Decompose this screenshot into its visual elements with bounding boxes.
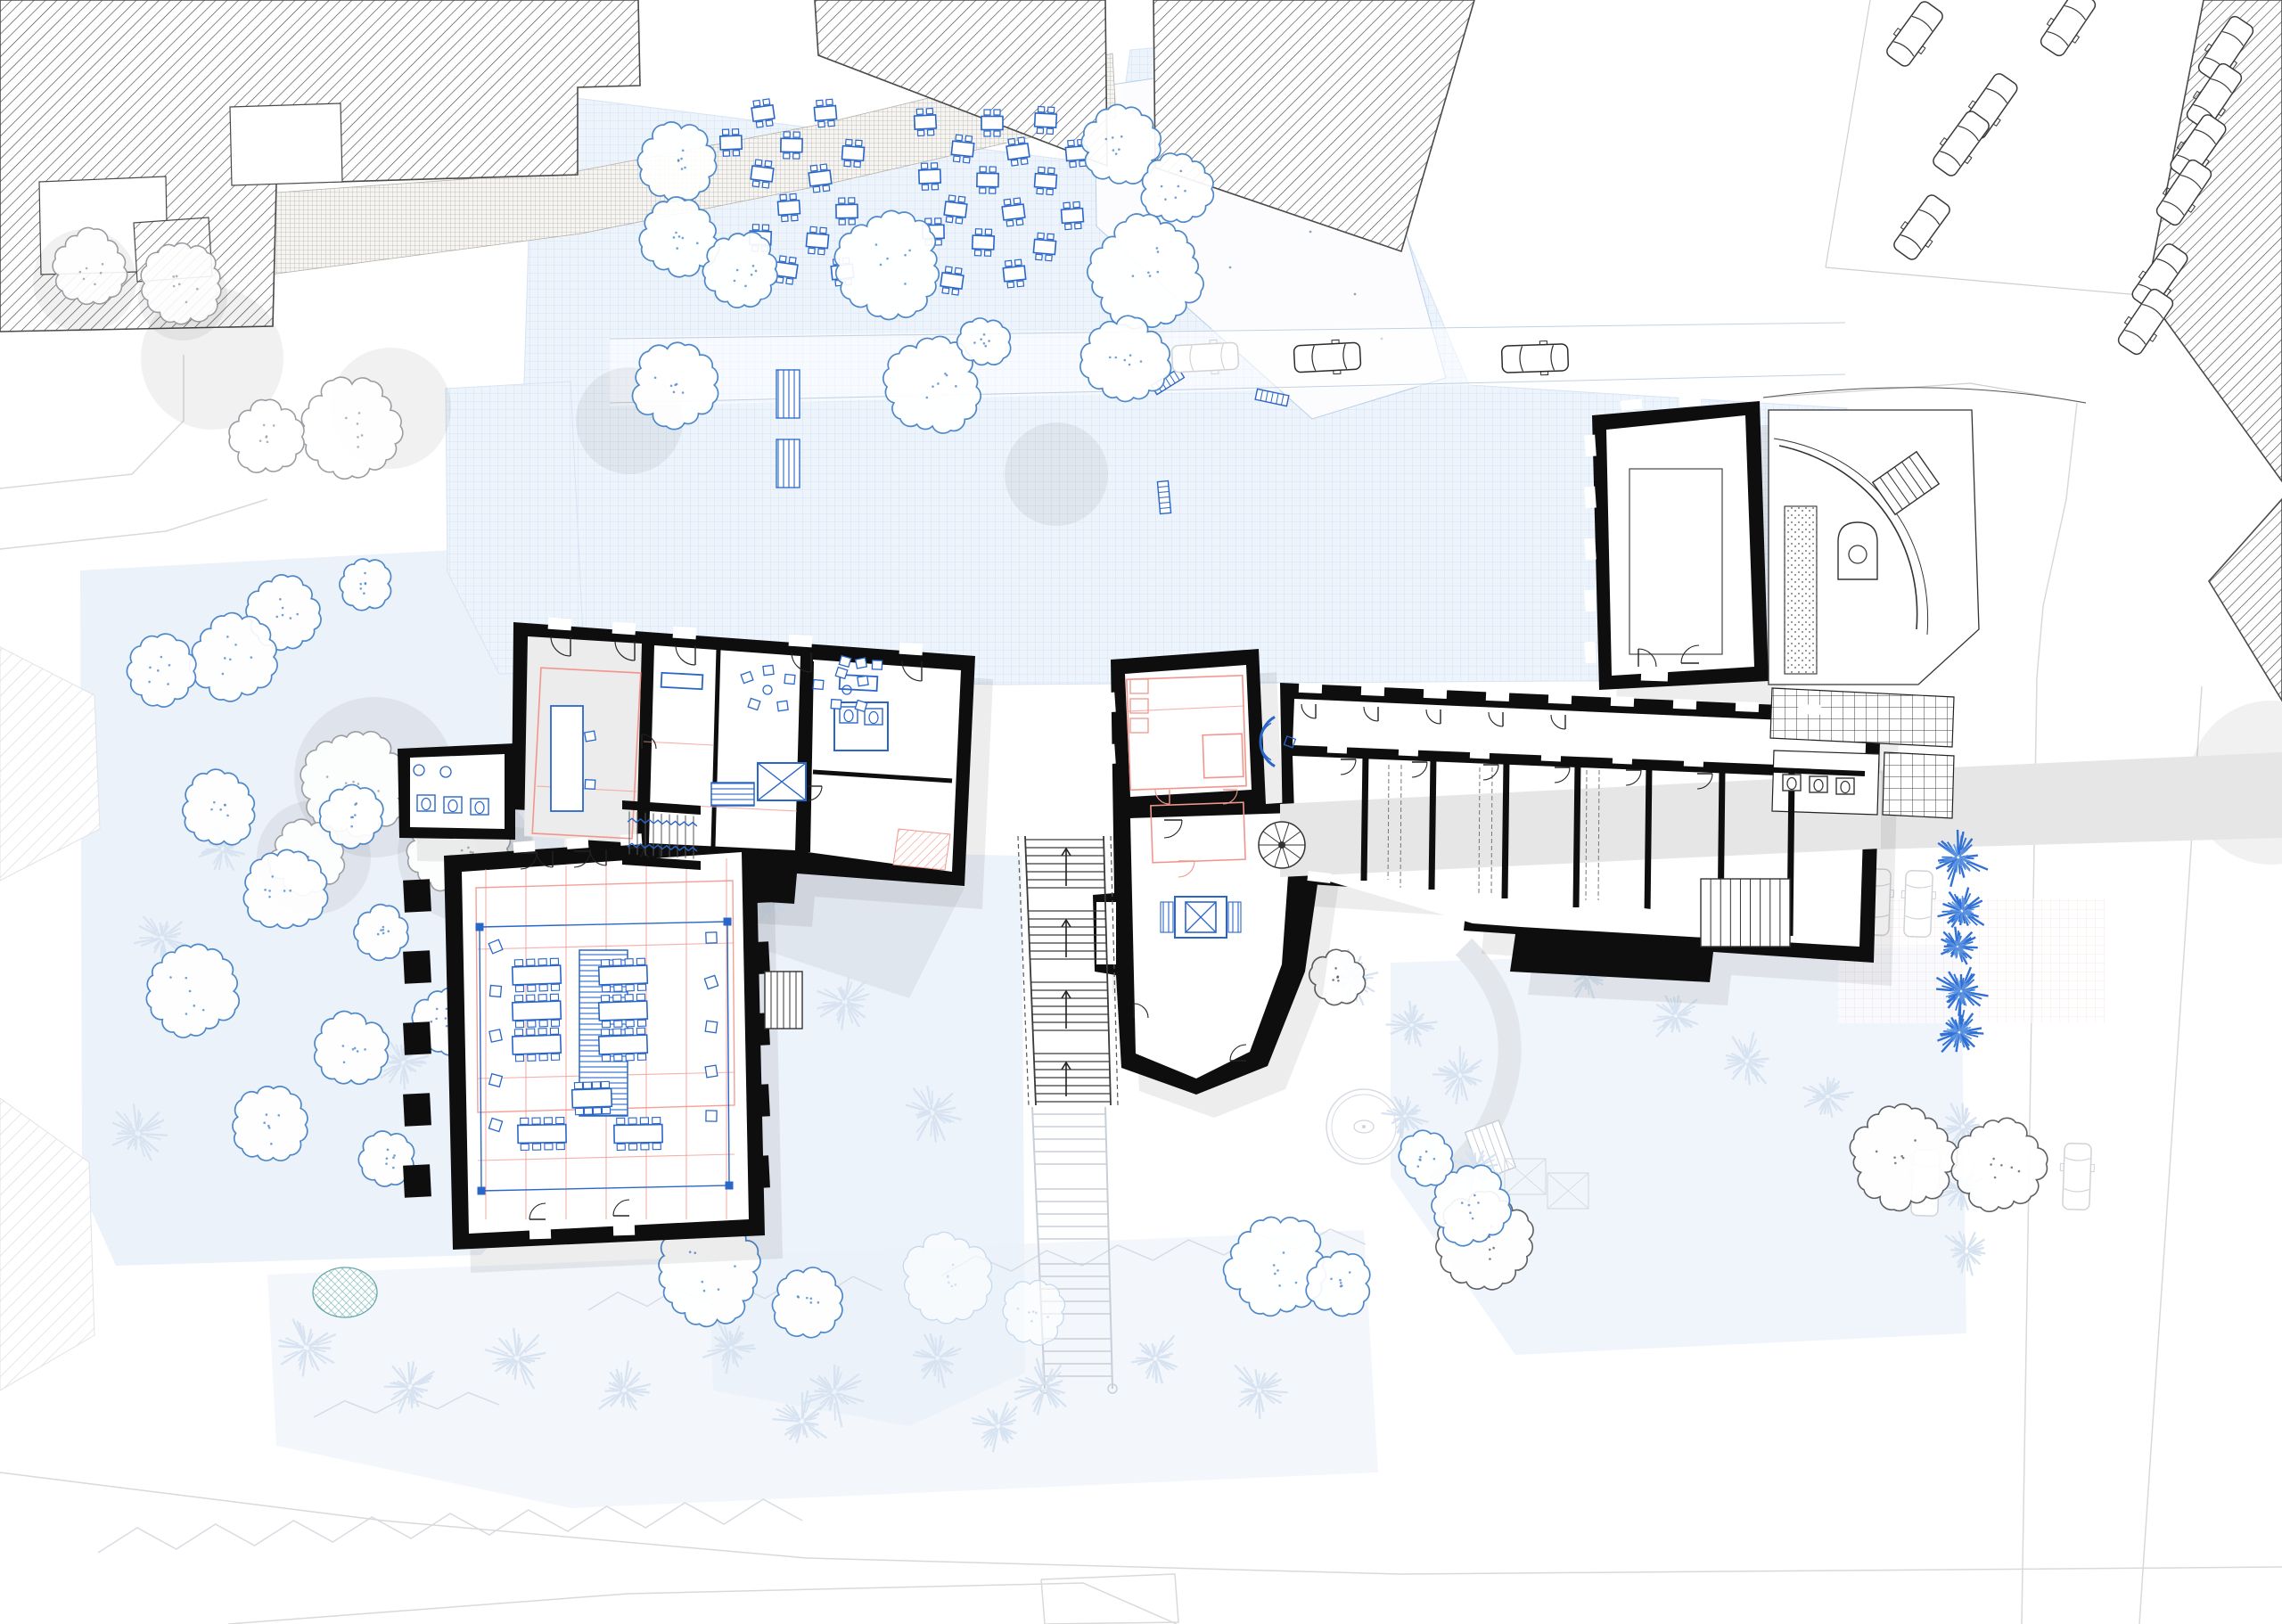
chair: [1065, 224, 1071, 229]
tree-dot: [1900, 1155, 1903, 1158]
tree-dot: [393, 1154, 396, 1157]
tree-dot: [263, 1121, 266, 1124]
tree-dot: [357, 446, 359, 448]
chair: [637, 984, 645, 990]
chair: [856, 140, 862, 145]
palm-frond: [1420, 1025, 1432, 1026]
toilet-fixture: [444, 797, 462, 813]
tree-dot: [1994, 1177, 1997, 1179]
tree-dot: [1876, 1151, 1878, 1153]
tree-dot: [1273, 1264, 1276, 1267]
site-plan-svg: [0, 0, 2282, 1624]
table-top: [973, 235, 995, 250]
tree-dot: [682, 149, 685, 152]
table-top: [751, 166, 774, 182]
column-marker: [478, 1187, 486, 1195]
tree-dot: [703, 1290, 706, 1292]
blue-tree: [243, 849, 327, 928]
chair: [1038, 107, 1044, 112]
chair: [602, 1055, 610, 1062]
car-body: [1904, 870, 1933, 937]
tree-dot: [345, 417, 348, 420]
tree-dot: [277, 1114, 280, 1117]
parked-car: [2036, 0, 2101, 60]
palm-frond: [403, 1048, 404, 1057]
chair: [789, 257, 796, 263]
chair: [551, 1054, 559, 1060]
tree-dot: [1030, 1320, 1033, 1323]
table-top: [981, 117, 1003, 130]
work-table: [571, 1081, 612, 1115]
tree-dot: [1035, 1312, 1038, 1315]
chair: [784, 674, 795, 684]
blue-stair: [711, 783, 754, 806]
tree-dot: [1180, 170, 1183, 173]
chair: [617, 1118, 625, 1124]
chair: [1047, 107, 1054, 112]
tree-dot: [954, 1284, 956, 1286]
tree-dot: [1468, 1204, 1471, 1207]
palm-frond: [1432, 1074, 1457, 1075]
tree-dot: [1339, 1279, 1342, 1282]
tree-dot: [357, 783, 360, 785]
tree-dot: [352, 1048, 355, 1051]
tree-dot: [980, 338, 982, 340]
chair: [931, 163, 937, 168]
palm-frond: [1155, 1361, 1156, 1383]
palm-frond: [1244, 1389, 1253, 1390]
tree-dot: [674, 384, 677, 387]
palm-frond: [844, 989, 845, 997]
tree-dot: [1184, 190, 1186, 193]
tree-dot: [283, 890, 286, 892]
chair: [963, 157, 970, 163]
chair: [935, 218, 941, 224]
chair: [521, 1118, 529, 1124]
table-top: [513, 965, 562, 985]
ghost-parked-car: [1900, 870, 1937, 937]
chair: [935, 240, 941, 245]
chair: [1068, 140, 1074, 146]
tree-dot: [446, 1025, 448, 1028]
tree-dot: [2000, 1164, 2003, 1167]
tree-dot: [169, 976, 172, 979]
chair: [1046, 255, 1052, 261]
chair: [602, 986, 610, 992]
palm-frond: [1259, 1393, 1260, 1419]
chair: [945, 267, 952, 273]
chair: [752, 181, 759, 187]
palm-frond: [1968, 1127, 1976, 1128]
tree-dot: [678, 235, 681, 238]
tree-dot: [226, 636, 229, 638]
chair: [1038, 233, 1044, 239]
window-opening: [1584, 538, 1597, 561]
tree-dot: [359, 583, 362, 586]
tree-dot: [345, 782, 348, 784]
palm-frond: [931, 1121, 932, 1136]
chair: [544, 1118, 552, 1124]
chair: [551, 1020, 559, 1026]
chair: [539, 1054, 547, 1061]
chair: [550, 994, 558, 1000]
palm-frond: [730, 1331, 731, 1346]
chair: [593, 1108, 601, 1114]
curb-line: [0, 1472, 2282, 1574]
tree-dot: [357, 422, 359, 425]
chair: [817, 100, 823, 106]
table-top: [518, 1125, 566, 1144]
tree-dot: [1175, 196, 1178, 199]
chair: [952, 289, 959, 295]
chair: [601, 960, 609, 966]
tree-dot: [189, 990, 192, 993]
tree-dot: [673, 236, 676, 239]
gravel-dot: [1229, 267, 1232, 269]
chair: [780, 194, 786, 200]
tree-dot: [279, 598, 282, 601]
chair: [528, 1054, 536, 1061]
table-top: [513, 1001, 562, 1021]
tree-dot: [810, 1301, 813, 1304]
stair-outline: [1701, 879, 1790, 947]
tree-dot: [296, 613, 299, 616]
tree-dot: [701, 1281, 703, 1284]
tree-dot: [210, 808, 213, 811]
tree-dot: [983, 342, 986, 345]
table-top: [1062, 209, 1084, 224]
tree-dot: [196, 288, 199, 291]
chair: [575, 1108, 583, 1114]
lot-line: [1826, 267, 2150, 296]
tree-dot: [1336, 976, 1339, 979]
chair: [1016, 219, 1023, 226]
table-top: [842, 146, 865, 161]
chair: [989, 167, 996, 172]
tree-dot: [435, 1018, 438, 1021]
chair: [828, 120, 834, 127]
tree-dot: [86, 267, 88, 270]
elevator-stair-wing: [1161, 902, 1173, 932]
tree-dot: [680, 158, 683, 160]
tree-dot: [1278, 1284, 1281, 1287]
tree-dot: [352, 781, 355, 783]
tree-dot: [102, 263, 104, 266]
tree-dot: [355, 802, 357, 805]
window-opening: [1611, 696, 1634, 707]
tree-dot: [382, 929, 385, 931]
chair: [958, 196, 965, 202]
window-opening: [1361, 685, 1384, 696]
chair: [965, 135, 973, 142]
chair: [826, 99, 833, 105]
table-top: [915, 115, 937, 129]
window-opening: [1299, 683, 1322, 693]
chair: [856, 658, 867, 668]
table-top: [951, 141, 973, 156]
tree-dot: [1017, 1308, 1020, 1310]
tree-dot: [1178, 185, 1180, 188]
palm-frond: [309, 1348, 331, 1349]
palm-frond: [1405, 1120, 1406, 1128]
tree-dot: [160, 656, 163, 659]
stool: [489, 985, 501, 997]
window-opening: [1105, 693, 1116, 713]
wc-stall: [417, 795, 435, 811]
chair: [1011, 160, 1018, 166]
tree-dot: [392, 1167, 395, 1169]
chair: [653, 1118, 661, 1124]
tree-dot: [926, 397, 929, 399]
chair: [1021, 159, 1028, 165]
chair: [556, 1144, 564, 1150]
car-body: [1293, 342, 1360, 373]
toilet-fixture: [417, 795, 435, 811]
tree-dot: [950, 1285, 953, 1288]
tree-dot: [1161, 185, 1163, 188]
tree-dot: [734, 1265, 736, 1267]
tree-dot: [157, 669, 160, 672]
chair: [762, 182, 769, 188]
table-top: [1035, 174, 1057, 189]
window-opening: [1621, 398, 1643, 410]
tree-dot: [185, 1013, 188, 1015]
chair: [1036, 254, 1042, 260]
tree-dot: [94, 283, 96, 286]
toilet-fixture: [1810, 776, 1827, 792]
window-opening: [613, 1225, 635, 1236]
planting-bed: [1785, 506, 1817, 674]
context-building: [2209, 499, 2282, 701]
tree-dot: [282, 614, 284, 617]
tree-dot: [904, 283, 907, 285]
table-top: [599, 1035, 648, 1054]
tree-dot: [176, 275, 178, 277]
tree-dot: [1115, 152, 1118, 155]
car-body: [2063, 1143, 2092, 1210]
chair: [753, 100, 760, 106]
parked-car: [1882, 0, 1948, 70]
tree-dot: [1112, 149, 1115, 152]
chair: [551, 984, 559, 990]
chair: [994, 131, 1000, 136]
table-top: [599, 1001, 648, 1021]
lot-line: [1826, 0, 1870, 267]
chair: [527, 995, 535, 1001]
tree-dot: [1283, 1251, 1285, 1254]
chair: [752, 225, 759, 230]
chair: [793, 153, 800, 159]
gravel-dot: [1309, 231, 1312, 234]
chair: [539, 1021, 547, 1027]
palm-frond: [408, 1362, 410, 1384]
tree-dot: [173, 285, 176, 288]
tree-dot: [172, 275, 175, 278]
chair: [984, 250, 990, 256]
chair: [994, 110, 1000, 115]
tree-dot: [1340, 1285, 1342, 1288]
tree-dot: [677, 159, 680, 161]
tree-dot: [1337, 980, 1340, 982]
chair: [1017, 281, 1024, 287]
wc-stall: [1783, 775, 1801, 791]
tree-dot: [350, 816, 353, 819]
tree-dot: [268, 896, 271, 898]
tree-dot: [1047, 1316, 1049, 1318]
window-opening: [1486, 691, 1509, 701]
chair: [533, 1144, 541, 1150]
chair: [762, 225, 768, 230]
window-opening: [1470, 750, 1490, 759]
table-top: [599, 965, 648, 985]
interior-wall: [1576, 762, 1578, 907]
chair: [777, 701, 788, 710]
tree-dot: [149, 667, 152, 669]
chair: [550, 958, 558, 964]
tree-dot: [676, 247, 678, 250]
tree-dot: [675, 232, 677, 234]
palm-frond: [205, 849, 216, 849]
gravel-dot: [1354, 293, 1357, 296]
palm-frond: [803, 1427, 804, 1435]
table-top: [781, 138, 802, 152]
chair: [1007, 282, 1014, 288]
tree-dot: [358, 412, 361, 414]
tree-dot: [1340, 1282, 1342, 1284]
tree-dot: [2010, 1166, 2013, 1169]
tree-dot: [1425, 1151, 1428, 1153]
tree-dot: [751, 274, 753, 276]
palm-frond: [1241, 1390, 1257, 1392]
tree-dot: [817, 1301, 820, 1304]
chair: [926, 109, 932, 114]
chair: [585, 731, 596, 742]
tree-dot: [361, 434, 364, 437]
tree-dot: [275, 616, 278, 619]
tiled-floor: [1883, 752, 1954, 818]
tree-dot: [365, 583, 367, 586]
tree-dot: [267, 440, 269, 443]
chair: [946, 217, 953, 223]
chair: [792, 215, 798, 220]
blue-tree: [233, 1087, 308, 1161]
chair: [1047, 189, 1053, 194]
tree-dot: [755, 270, 758, 273]
stool: [706, 932, 717, 943]
interior-wall: [1432, 757, 1433, 890]
chair: [574, 1082, 582, 1088]
buttress: [403, 950, 431, 984]
chair: [820, 227, 826, 234]
chair: [514, 996, 522, 1002]
chair: [722, 129, 728, 135]
column-marker: [724, 918, 732, 926]
column-marker: [726, 1182, 734, 1190]
tree-dot: [83, 278, 86, 281]
chair: [527, 959, 535, 965]
curb-line: [228, 1583, 1177, 1624]
terrace-court: [1763, 388, 2086, 685]
palm-frond: [227, 848, 234, 849]
palm-frond: [1958, 1022, 1959, 1031]
tree-dot: [1157, 250, 1160, 253]
tree-dot: [1156, 247, 1159, 250]
window-opening: [1327, 744, 1347, 754]
tree-dot: [357, 436, 359, 439]
tree-dot: [350, 825, 353, 828]
tree-dot: [282, 607, 284, 610]
tree-dot: [290, 617, 292, 619]
chair: [839, 656, 850, 668]
chair: [613, 995, 621, 1001]
tree-dot: [446, 1007, 448, 1010]
tree-dot: [392, 1157, 395, 1160]
tree-dot: [213, 801, 216, 804]
tree-dot: [1349, 1271, 1351, 1274]
palm-frond: [1958, 861, 1959, 866]
palm-frond: [1947, 1126, 1957, 1127]
tree-dot: [654, 376, 657, 379]
tree-dot: [343, 1061, 346, 1063]
hall-void: [1629, 469, 1722, 654]
tree-dot: [1419, 1156, 1422, 1159]
faint-tree: [1003, 1281, 1064, 1346]
tree-dot: [385, 1162, 388, 1165]
chair: [601, 1081, 609, 1087]
chair: [528, 985, 536, 991]
tree-dot: [1418, 1159, 1421, 1161]
chair: [1073, 201, 1079, 207]
tree-dot: [264, 889, 267, 891]
chair: [538, 959, 546, 965]
tree-dot: [168, 664, 171, 667]
chair: [765, 160, 772, 167]
chair: [614, 985, 622, 991]
chair: [786, 278, 793, 284]
tree-dot: [1132, 275, 1135, 277]
chair: [782, 216, 788, 221]
window-opening: [612, 622, 636, 636]
window-opening: [1548, 693, 1572, 704]
window-opening: [789, 635, 813, 648]
chair: [932, 185, 938, 190]
chair: [1014, 198, 1021, 204]
window-opening: [899, 643, 923, 656]
chair: [985, 229, 991, 234]
tree-dot: [1492, 1247, 1495, 1250]
tree-dot: [167, 683, 169, 685]
tree-dot: [1274, 1273, 1276, 1275]
chair: [948, 195, 956, 201]
tree-dot: [988, 340, 990, 342]
interior-wall: [808, 661, 811, 852]
table-top: [919, 169, 941, 184]
lot-line: [1763, 383, 1970, 398]
window-opening: [1424, 688, 1447, 699]
window-opening: [1679, 395, 1702, 406]
table-top: [1006, 144, 1030, 160]
chair: [980, 167, 986, 172]
chair: [854, 161, 860, 167]
room-interior: [410, 754, 505, 829]
tree-dot: [952, 1264, 955, 1267]
tree-dot: [268, 1127, 271, 1129]
chair: [820, 164, 827, 170]
fountain-jet: [1362, 1125, 1366, 1128]
tree-dot: [682, 237, 685, 240]
palm-frond: [1475, 1152, 1476, 1162]
tree-dot: [1472, 1218, 1474, 1220]
